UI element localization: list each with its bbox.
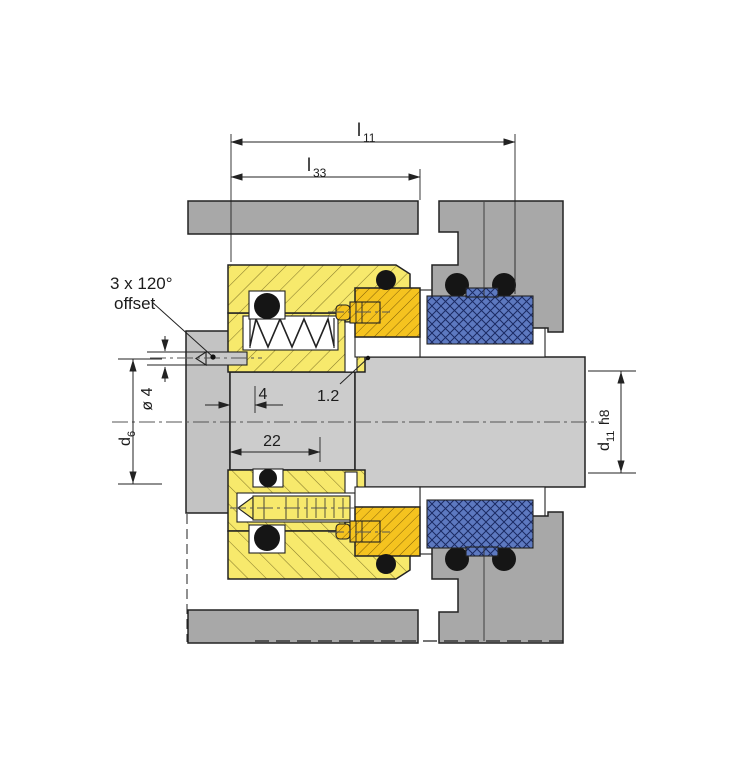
shaft-small-step — [230, 372, 355, 470]
dim-l33-label: l — [307, 155, 311, 175]
dim-l33-sub: 33 — [313, 166, 327, 180]
housing-bottom-band — [188, 610, 418, 643]
sleeve-o-ring-lower — [259, 469, 277, 487]
dim-d11-sub: 11 — [605, 431, 617, 442]
bellows-o-ring-upper-left — [445, 273, 469, 297]
bellows-lower — [427, 500, 533, 548]
dim-phi4-label: ø 4 — [139, 387, 156, 410]
housing-top-band — [188, 201, 418, 234]
dim-l11-label: l — [357, 120, 361, 140]
dim-d6-label: d — [117, 437, 134, 446]
bellows-lower-plateau — [466, 547, 498, 556]
seat-o-ring-lower — [376, 554, 396, 574]
dim-4-label: 4 — [259, 386, 268, 403]
bellows-o-ring-lower-left — [445, 547, 469, 571]
note-offset-line1: 3 x 120° — [110, 274, 173, 293]
note-offset-line2: offset — [114, 294, 156, 313]
surface-12-dot — [366, 356, 370, 360]
under-seat-gap-lower — [355, 487, 420, 507]
gland-o-ring-lower — [254, 525, 280, 551]
technical-drawing: l 11 l 33 3 x 120° offset ø 4 d 6 4 1.2 … — [0, 0, 731, 768]
dim-22-label: 22 — [263, 433, 281, 450]
bellows-upper-plateau — [466, 288, 498, 297]
dim-d11-tolerance: h8 — [596, 409, 612, 425]
note-leader-line — [152, 302, 212, 356]
dim-d6-sub: 6 — [126, 431, 138, 437]
dim-l11-sub: 11 — [363, 131, 376, 145]
note-leader-dot — [210, 354, 215, 359]
seat-o-ring-upper — [376, 270, 396, 290]
surface-12-label: 1.2 — [317, 388, 339, 405]
dim-d11-label: d — [596, 442, 613, 451]
bellows-upper — [427, 296, 533, 344]
under-seat-gap-upper — [355, 337, 420, 357]
gland-o-ring-upper — [254, 293, 280, 319]
